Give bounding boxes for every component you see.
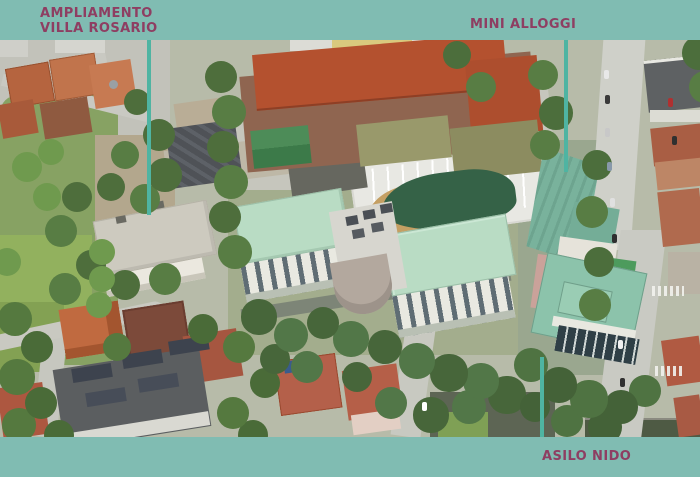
label-line-1: AMPLIAMENTO [40, 6, 158, 21]
label-ampliamento-villa-rosario: AMPLIAMENTO VILLA ROSARIO [40, 6, 158, 36]
brick-apartment-2 [657, 188, 700, 247]
leader-line-asilo-nido [540, 357, 544, 437]
green-pitched-roof-building [250, 125, 312, 169]
leader-line-mini-alloggi [564, 40, 568, 172]
label-asilo-nido: ASILO NIDO [542, 449, 631, 464]
house-dome [109, 80, 118, 89]
house-roof-tl-4 [39, 96, 92, 139]
crosswalk-upper [652, 286, 684, 296]
brick-apartment-wall-1 [655, 158, 700, 191]
apartment-dark-panel-roof [165, 119, 243, 188]
presentation-slide: AMPLIAMENTO VILLA ROSARIO MINI ALLOGGI [0, 0, 700, 477]
white-building-top-edge-1 [55, 40, 105, 53]
label-mini-alloggi: MINI ALLOGGI [470, 17, 576, 32]
grass-strip-bottom [438, 412, 488, 437]
leader-line-villa-rosario [147, 40, 151, 215]
orange-house-bottom [58, 301, 125, 360]
right-building-dark-roof [643, 55, 700, 113]
right-building-white-wall [650, 110, 700, 122]
crosswalk-lower [655, 366, 683, 376]
red-roof-right-1 [661, 336, 700, 387]
label-line-2: VILLA ROSARIO [40, 21, 158, 36]
cars [0, 40, 5, 49]
aerial-photo [0, 40, 700, 437]
house-roof-tl-3 [0, 99, 39, 139]
field-upper [0, 235, 92, 310]
red-roof-left-edge [0, 382, 49, 437]
red-roof-right-2 [673, 394, 700, 437]
